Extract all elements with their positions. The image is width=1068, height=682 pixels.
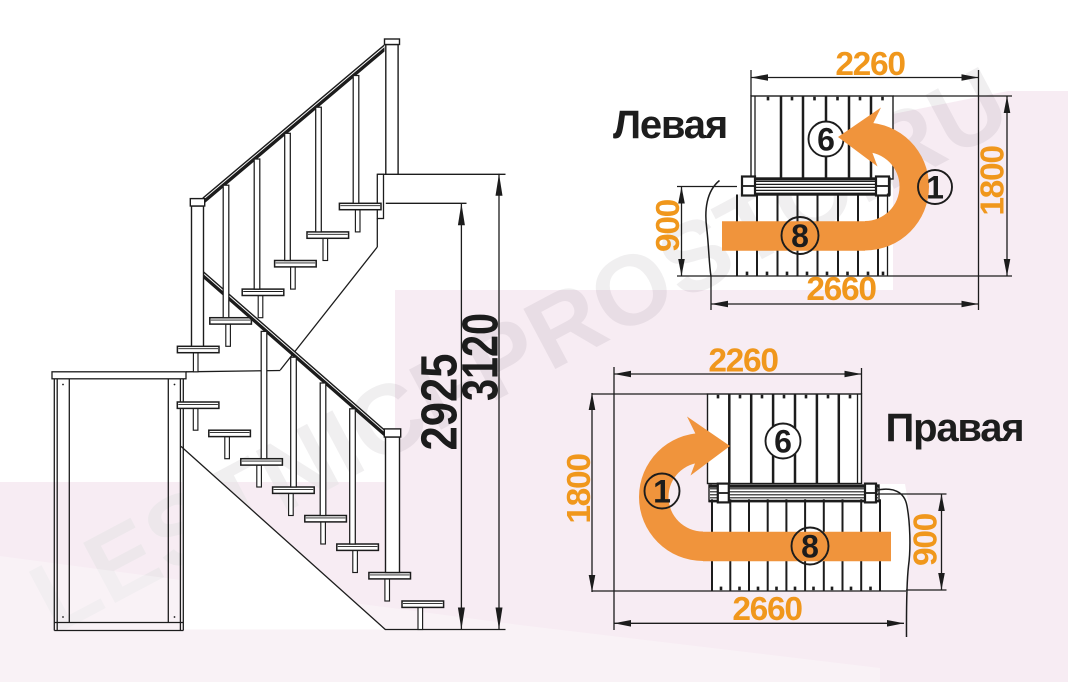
svg-text:Левая: Левая	[613, 103, 727, 147]
svg-text:8: 8	[791, 218, 809, 254]
svg-text:8: 8	[801, 528, 819, 564]
svg-text:6: 6	[817, 121, 835, 157]
svg-text:6: 6	[774, 423, 792, 459]
svg-text:1: 1	[926, 169, 944, 205]
svg-text:3120: 3120	[452, 313, 509, 401]
svg-text:2260: 2260	[708, 343, 778, 380]
svg-text:2660: 2660	[732, 591, 802, 628]
svg-text:900: 900	[908, 513, 945, 566]
svg-text:900: 900	[650, 199, 687, 252]
svg-text:Правая: Правая	[886, 406, 1024, 450]
svg-text:1800: 1800	[975, 146, 1012, 216]
svg-text:1: 1	[653, 473, 671, 509]
svg-text:2660: 2660	[806, 271, 876, 308]
svg-text:1800: 1800	[561, 454, 598, 524]
svg-text:2260: 2260	[835, 46, 905, 83]
